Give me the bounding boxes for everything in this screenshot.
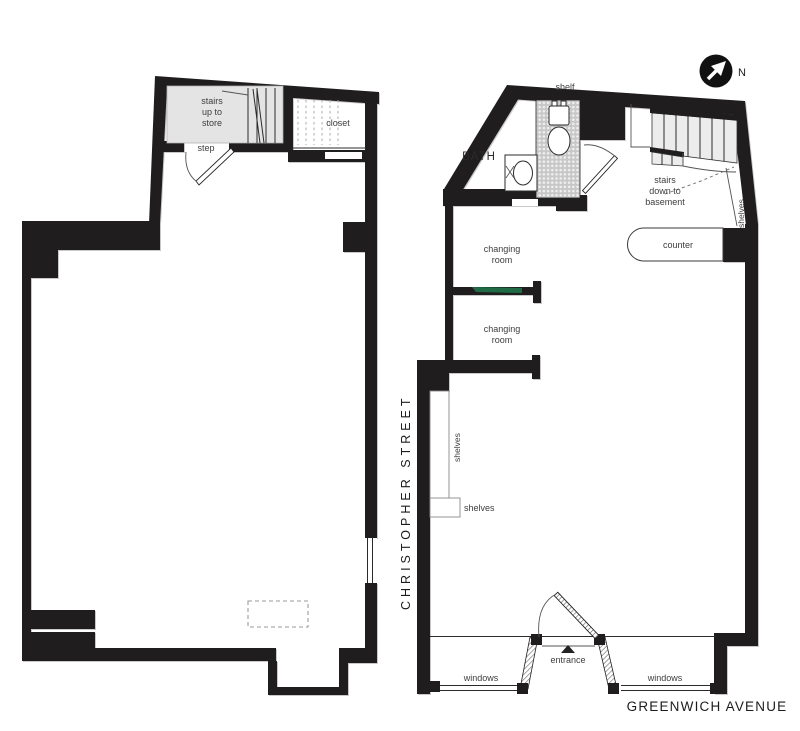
store-walls <box>417 85 758 694</box>
bath-door-leaf <box>583 156 618 194</box>
wall-segment <box>445 206 453 360</box>
shelves-right-label: shelves <box>736 199 746 228</box>
shelf-label: shelf <box>555 82 575 92</box>
bath-label: BATH <box>462 151 496 163</box>
floor-plan-drawing: stairs up to store step closet <box>0 0 800 726</box>
counter-label: counter <box>663 240 693 250</box>
greenwich-avenue-label: GREENWICH AVENUE <box>627 699 788 714</box>
wall-segment <box>365 583 377 648</box>
shelves-left-vertical-label: shelves <box>452 433 462 462</box>
toilet-tank <box>549 106 569 125</box>
windows-right-label: windows <box>647 673 683 683</box>
wall-segment <box>22 278 31 653</box>
wall-segment <box>283 90 293 152</box>
basement-plan: stairs up to store step closet <box>22 76 379 695</box>
wall-segment <box>31 610 95 629</box>
stair-enclosure-line <box>631 104 650 147</box>
stairs-down-label-line3: basement <box>645 197 685 207</box>
entrance-label: entrance <box>550 655 585 665</box>
toilet-valve <box>561 101 566 106</box>
stairs-down-label-line2: down to <box>649 186 681 196</box>
stairs-up-label-line1: stairs <box>201 96 223 106</box>
step-label: step <box>197 143 214 153</box>
wall-end-cap <box>533 281 541 303</box>
dashed-overhead-outline <box>248 601 308 627</box>
store-stairs <box>631 104 740 194</box>
stairs-down-label-line1: stairs <box>654 175 676 185</box>
closet-shelf-slot <box>325 152 362 159</box>
wall-segment <box>745 224 758 645</box>
toilet-bowl <box>548 127 570 155</box>
wall-segment <box>417 630 430 694</box>
basement-window <box>365 538 377 583</box>
wall-notch <box>512 199 538 206</box>
closet-label: closet <box>326 118 350 128</box>
mullion-post <box>608 683 619 694</box>
window-gap <box>365 538 377 583</box>
floor-plan-page: stairs up to store step closet <box>0 0 800 726</box>
compass-north-label: N <box>738 67 746 79</box>
changing-room-2-label-line2: room <box>492 335 513 345</box>
shelves-left-lower-label: shelves <box>464 503 495 513</box>
stairs-up-label-line2: up to <box>202 107 222 117</box>
mullion-post <box>710 683 721 694</box>
wall-segment <box>430 373 449 391</box>
step-door-swing-arc <box>186 152 197 182</box>
step-door-leaf <box>196 148 234 185</box>
wall-pilaster <box>343 222 365 252</box>
wall-segment <box>580 101 625 140</box>
wall-segment <box>339 661 348 695</box>
wall-end-cap <box>532 355 540 379</box>
bath-door-swing-arc <box>584 145 616 157</box>
shelves-left-lower-unit <box>430 498 460 517</box>
changing-room-1-label-line1: changing <box>484 244 521 254</box>
sink-basin <box>514 161 533 185</box>
wall-segment <box>268 687 348 695</box>
mullion-post <box>517 683 528 694</box>
shelves-left-vertical-unit <box>430 391 449 499</box>
wall-segment <box>714 633 758 646</box>
wall-segment <box>22 648 276 661</box>
basement-walls <box>22 76 379 695</box>
wall-segment <box>339 648 377 663</box>
mullion-post <box>531 634 542 645</box>
compass-north-icon: N <box>700 55 747 88</box>
toilet-valve <box>552 101 557 106</box>
entrance-door-swing-arc <box>539 594 556 637</box>
counter-wall-block <box>723 228 748 262</box>
wall-segment <box>417 360 430 634</box>
store-plan: shelf BATH stairs down to basement shelv… <box>417 82 758 694</box>
stairs-up-label-line3: store <box>202 118 222 128</box>
changing-room-1-label-line2: room <box>492 255 513 265</box>
wall-segment <box>417 360 533 373</box>
windows-left-label: windows <box>463 673 499 683</box>
wall-segment <box>22 250 58 278</box>
entrance-door-leaf <box>554 592 599 638</box>
mullion-post <box>429 681 440 692</box>
changing-room-2-label-line1: changing <box>484 324 521 334</box>
christopher-street-label: CHRISTOPHER STREET <box>399 394 413 610</box>
wall-segment <box>22 221 160 250</box>
